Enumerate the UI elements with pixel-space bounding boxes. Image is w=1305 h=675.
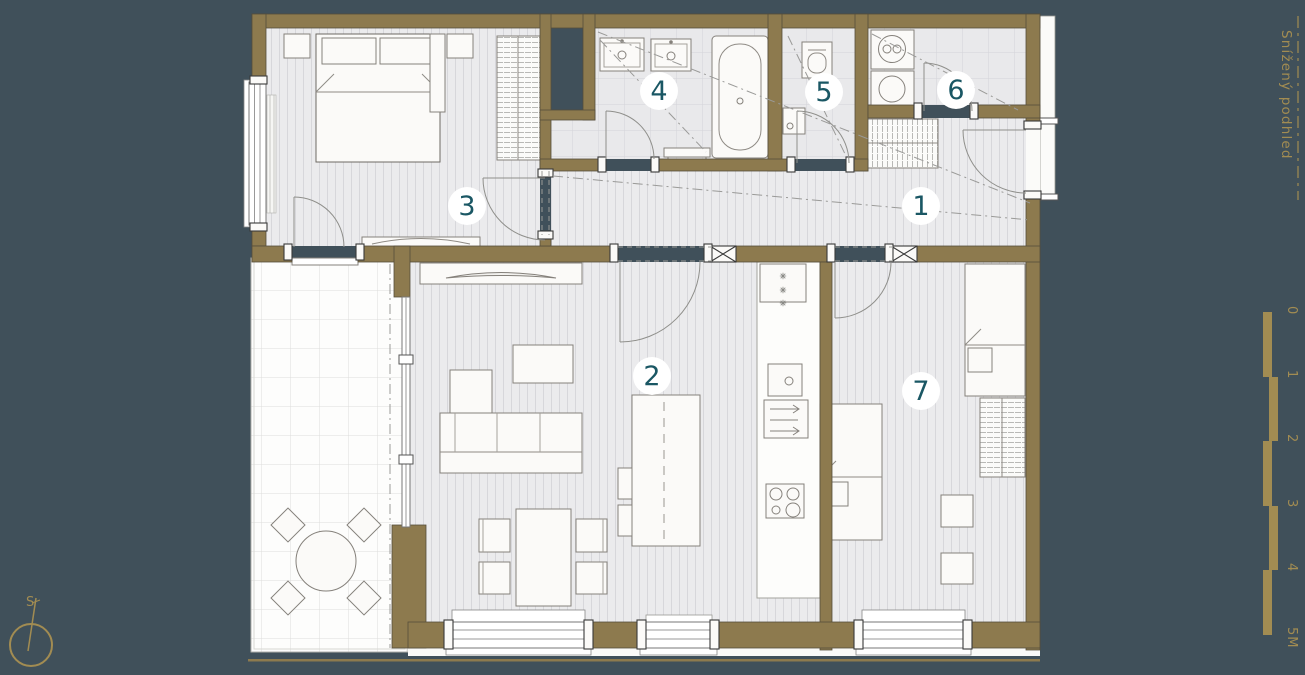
chair [576, 519, 607, 552]
balcony-floor [251, 258, 408, 652]
pillow [380, 38, 434, 64]
scale-tick-5m: 5M [1284, 627, 1299, 649]
room-number-7: 7 [902, 372, 940, 410]
fridge [760, 264, 806, 302]
cabinet [430, 34, 445, 112]
room-number-1: 1 [902, 187, 940, 225]
coffee-table [513, 345, 573, 383]
balcony-door-sill [292, 258, 358, 265]
entrance-porch [1040, 16, 1055, 198]
side-table [941, 553, 973, 584]
scale-tick-3: 3 [1284, 499, 1299, 508]
bench [664, 148, 710, 157]
pillow [322, 38, 376, 64]
pillow [968, 348, 992, 372]
kitchen-island [632, 395, 700, 546]
room-number-2: 2 [633, 357, 671, 395]
radiator [267, 95, 276, 213]
dining-table [516, 509, 571, 606]
chair [479, 562, 510, 594]
small-sink [783, 108, 805, 134]
side-table [941, 495, 973, 527]
room-number-6: 6 [937, 71, 975, 109]
floorplan-canvas: 1 2 3 4 5 6 7 Snížený podhled 0 1 2 3 4 … [0, 0, 1305, 675]
window-bottom-2 [645, 622, 712, 648]
single-bed [965, 264, 1025, 396]
sofa [440, 413, 582, 473]
bathtub [712, 36, 768, 158]
wall-living-bedroom7 [820, 262, 832, 650]
scale-tick-1: 1 [1284, 370, 1299, 379]
room-number-4: 4 [640, 72, 678, 110]
wall-top [252, 14, 1040, 28]
balcony-table [296, 531, 356, 591]
room-number-5: 5 [805, 73, 843, 111]
chair [479, 519, 510, 552]
nightstand [447, 34, 473, 58]
dishwasher [764, 400, 808, 438]
window-bottom-3 [862, 622, 965, 648]
sofa-chaise [450, 370, 492, 414]
scale-tick-2: 2 [1284, 434, 1299, 443]
window-left [249, 82, 266, 225]
scale-tick-0: 0 [1284, 306, 1299, 315]
entrance-opening [1026, 127, 1040, 193]
bottom-gold-line [248, 659, 1040, 662]
cooktop [766, 484, 804, 518]
chair [576, 562, 607, 594]
lowered-ceiling-note: Snížený podhled [1278, 30, 1294, 160]
room-number-3: 3 [448, 187, 486, 225]
window-bottom-1 [452, 622, 585, 648]
compass-north-label: S [26, 595, 34, 610]
scale-tick-4: 4 [1284, 563, 1299, 572]
scale-bar [1263, 312, 1278, 635]
nightstand [284, 34, 310, 58]
